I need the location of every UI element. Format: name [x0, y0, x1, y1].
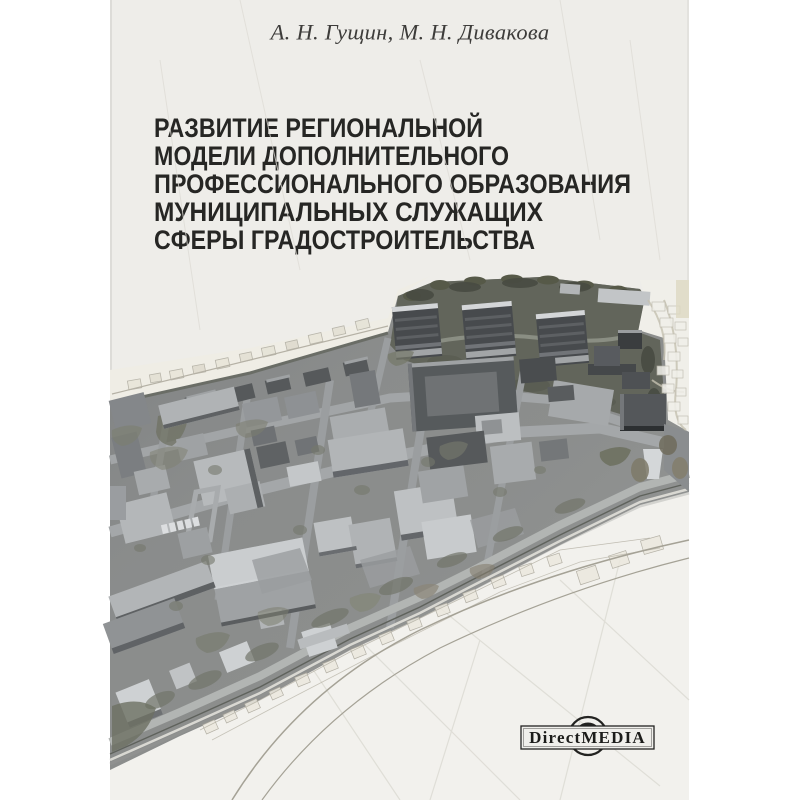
svg-text:МОДЕЛИ ДОПОЛНИТЕЛЬНОГО: МОДЕЛИ ДОПОЛНИТЕЛЬНОГО [154, 141, 509, 171]
svg-text:СФЕРЫ ГРАДОСТРОИТЕЛЬСТВА: СФЕРЫ ГРАДОСТРОИТЕЛЬСТВА [154, 225, 535, 255]
svg-text:ПРОФЕССИОНАЛЬНОГО ОБРАЗОВАНИЯ: ПРОФЕССИОНАЛЬНОГО ОБРАЗОВАНИЯ [154, 169, 631, 199]
svg-text:МУНИЦИПАЛЬНЫХ СЛУЖАЩИХ: МУНИЦИПАЛЬНЫХ СЛУЖАЩИХ [154, 197, 543, 227]
svg-text:DirectMEDIA: DirectMEDIA [529, 728, 646, 747]
svg-text:А. Н. Гущин, М. Н. Дивакова: А. Н. Гущин, М. Н. Дивакова [269, 20, 550, 45]
